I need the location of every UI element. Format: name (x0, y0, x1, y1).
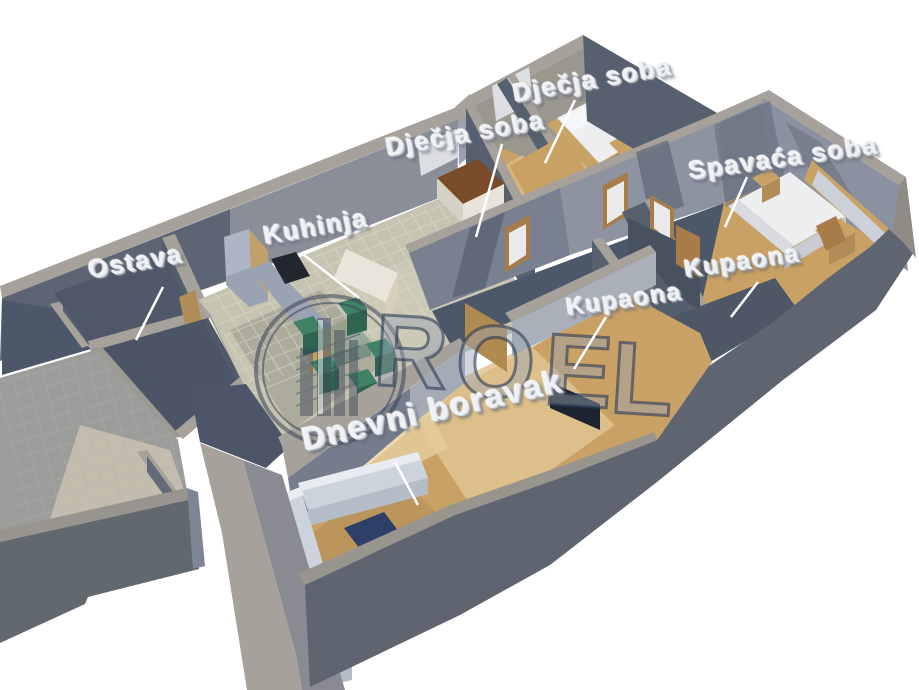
svg-text:L: L (608, 320, 677, 438)
